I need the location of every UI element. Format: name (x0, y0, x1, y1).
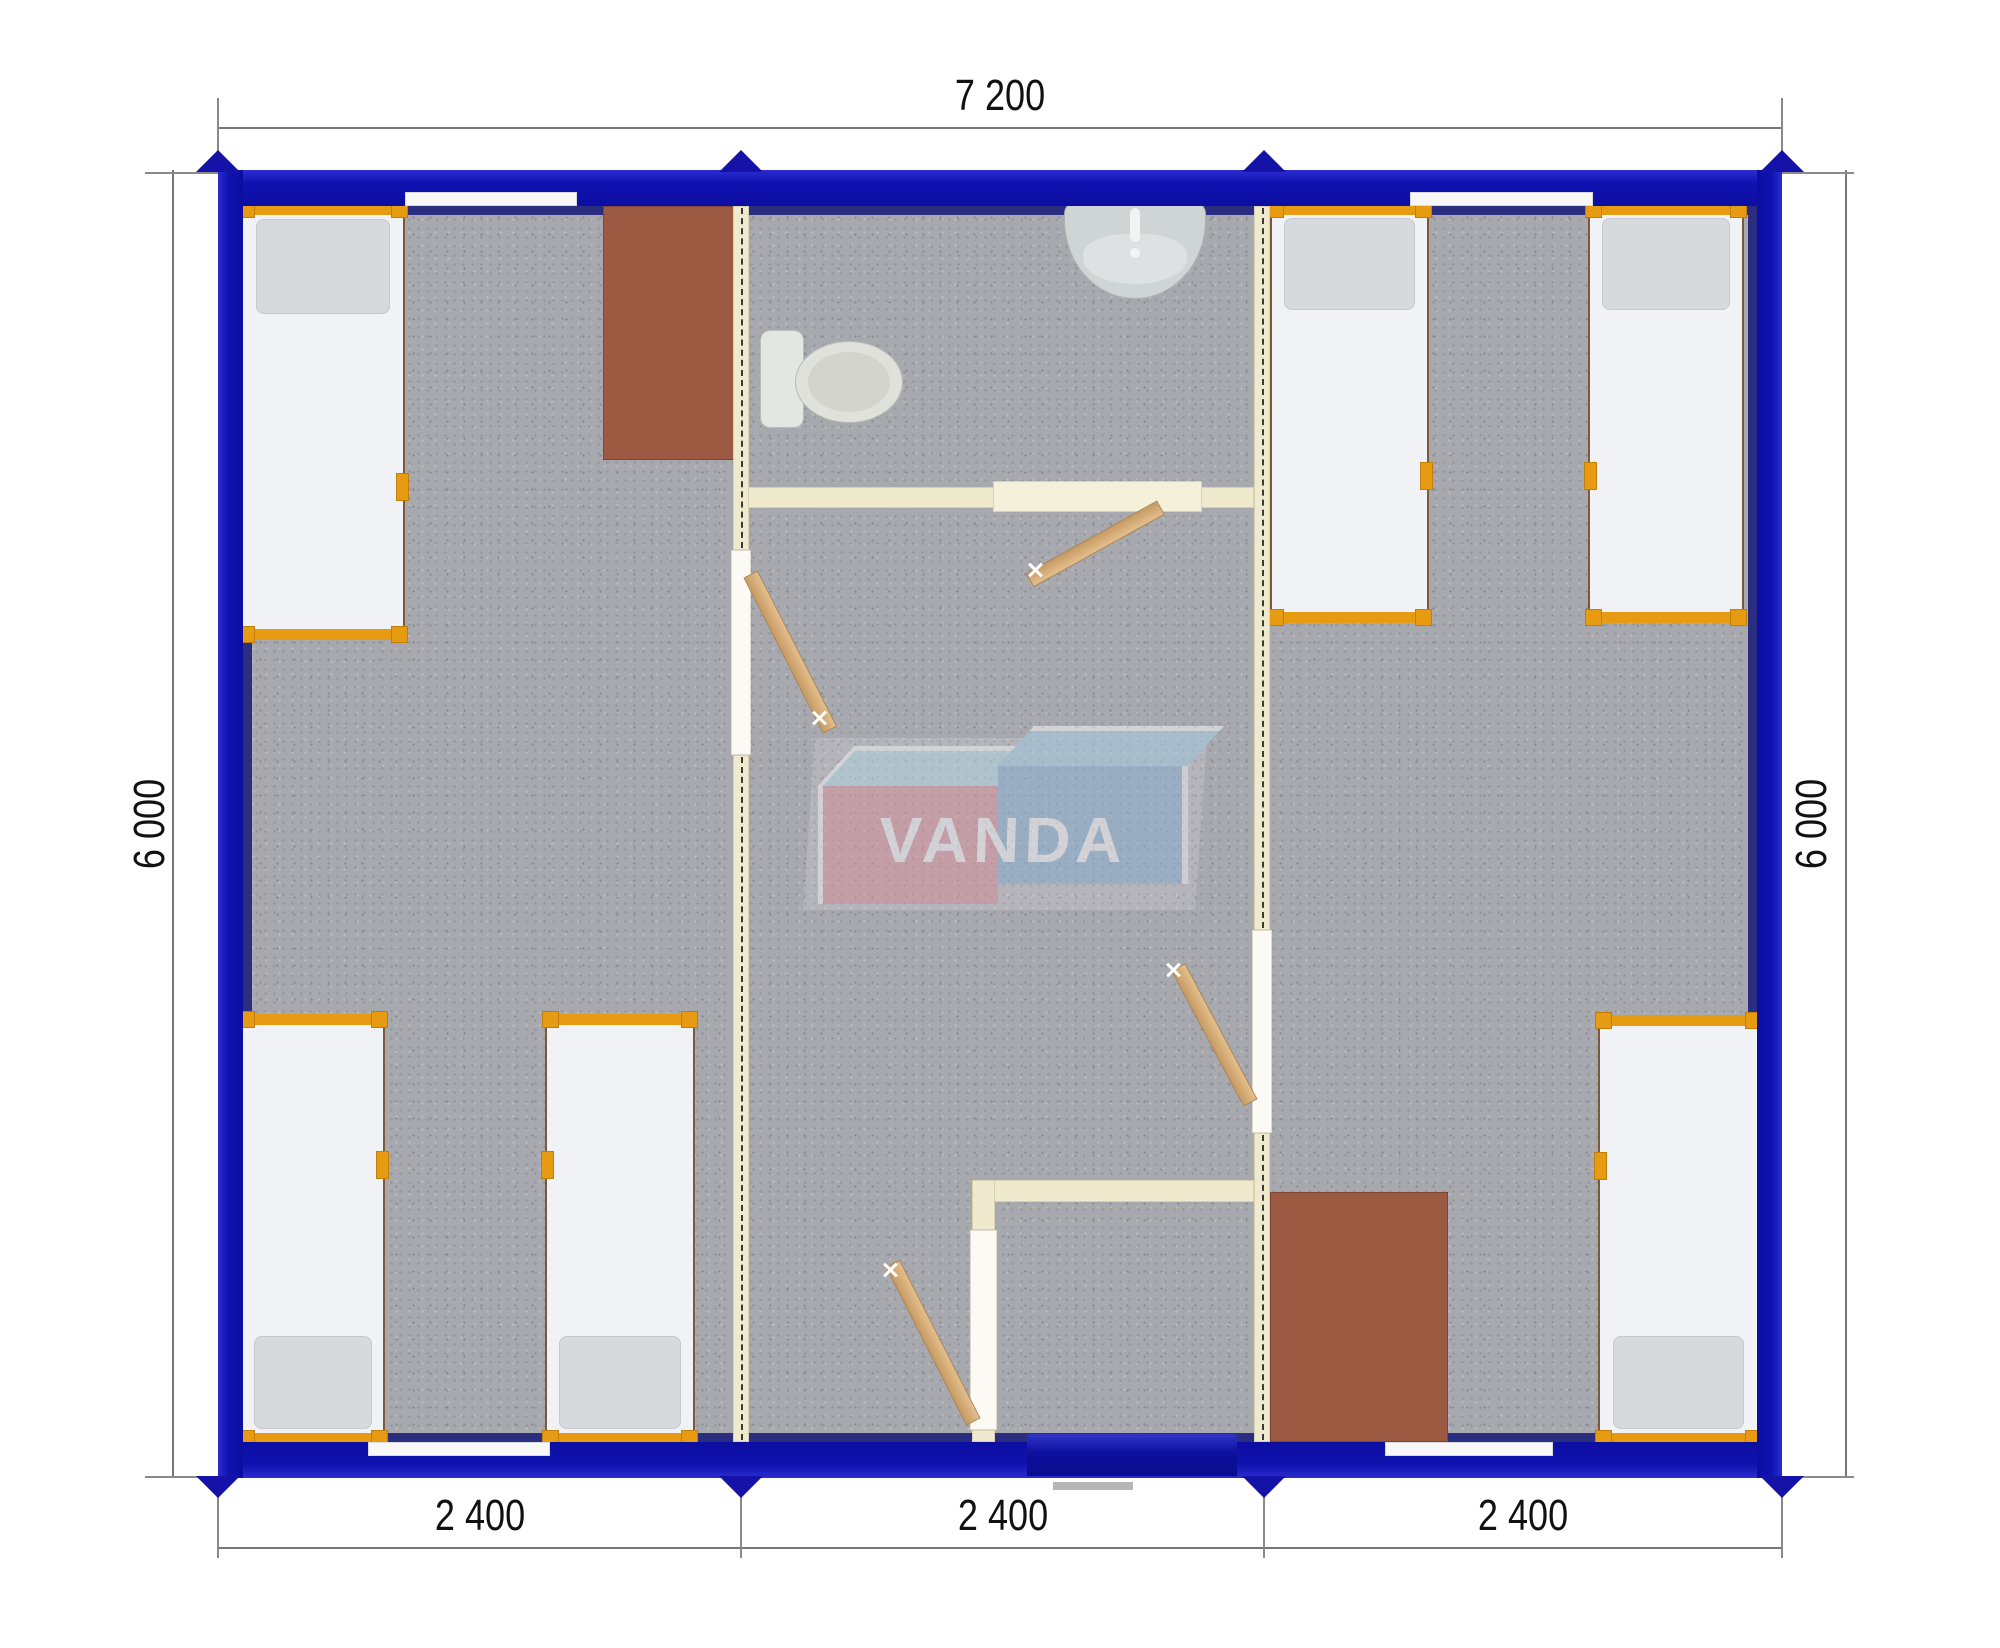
joint-marker-icon (719, 1476, 763, 1498)
bed-post (1268, 610, 1283, 625)
window (405, 192, 577, 206)
dim-label-left-height: 6 000 (126, 752, 174, 896)
bed-rail (545, 1014, 695, 1025)
bed (1600, 1017, 1757, 1442)
partition-wall-left (733, 206, 749, 550)
dim-label-module-2: 2 400 (937, 1492, 1068, 1540)
bed-post (682, 1012, 697, 1027)
bathroom-door-lintel (993, 481, 1202, 512)
bed (547, 1016, 693, 1442)
logo-text: VANDA (824, 804, 1183, 876)
dim-line-top (218, 127, 1782, 129)
entrance-door (1027, 1434, 1237, 1476)
ext-line (1782, 172, 1854, 174)
dim-line-right (1845, 170, 1847, 1478)
faucet (1130, 208, 1140, 242)
vanda-watermark-logo: VANDA (815, 726, 1195, 916)
dim-label-module-1: 2 400 (414, 1492, 545, 1540)
joint-marker-icon (1760, 150, 1804, 172)
bed (1272, 206, 1427, 621)
bed-post (372, 1012, 387, 1027)
bed-post (543, 1012, 558, 1027)
bed-rail (241, 1014, 385, 1025)
bed-rail (1588, 612, 1744, 623)
bed-post (1421, 463, 1432, 489)
door-opening-right-room (1252, 930, 1272, 1133)
joint-marker-icon (196, 1476, 240, 1498)
partition-wall-right (1254, 1133, 1270, 1442)
pillow (559, 1336, 682, 1430)
partition-wall-right (1254, 206, 1270, 930)
bed-post (397, 474, 408, 500)
bed-post (1586, 610, 1601, 625)
door-swing-marker (881, 1261, 899, 1279)
dim-line-bottom (218, 1547, 1782, 1549)
window (1410, 192, 1593, 206)
dim-label-module-3: 2 400 (1457, 1492, 1588, 1540)
bed-post (542, 1152, 553, 1178)
outer-wall-right (1757, 170, 1782, 1478)
bed-post (1416, 610, 1431, 625)
bed (1590, 206, 1742, 621)
partition-wall-left (733, 755, 749, 1442)
bed-post (392, 627, 407, 642)
bed-post (1596, 1013, 1611, 1028)
joint-marker-icon (196, 150, 240, 172)
door-swing-marker (1026, 561, 1044, 579)
door-swing-marker (1164, 961, 1182, 979)
joint-marker-icon (1242, 150, 1286, 172)
building-plan: VANDA (218, 170, 1782, 1478)
bed (243, 206, 403, 638)
joint-marker-icon (1242, 1476, 1286, 1498)
door-swing-marker (810, 709, 828, 727)
joint-marker-icon (1760, 1476, 1804, 1498)
pillow (1613, 1336, 1745, 1430)
door-opening-vestibule (970, 1230, 997, 1430)
outer-wall-left (218, 170, 243, 1478)
pillow (1602, 218, 1730, 309)
desk (603, 206, 734, 460)
logo-blue-top-face (998, 726, 1224, 766)
pillow (256, 219, 390, 314)
dim-label-total-width: 7 200 (934, 72, 1065, 120)
window (1385, 1442, 1553, 1456)
vestibule-wall-vertical (972, 1180, 995, 1230)
bed (243, 1016, 383, 1442)
bed-rail (1270, 612, 1429, 623)
bed-post (1585, 463, 1596, 489)
desk (1270, 1192, 1448, 1442)
dim-label-right-height: 6 000 (1788, 752, 1836, 896)
joint-marker-icon (719, 150, 763, 172)
vestibule-wall-horizontal (972, 1180, 1254, 1202)
bed-post (1595, 1153, 1606, 1179)
ext-line (145, 172, 220, 174)
bed-rail (1598, 1015, 1759, 1026)
bed-post (1731, 610, 1746, 625)
window (368, 1442, 550, 1456)
toilet-bowl (796, 342, 902, 422)
pillow (254, 1336, 372, 1430)
bed-rail (241, 629, 405, 640)
pillow (1284, 218, 1414, 309)
bed-post (377, 1152, 388, 1178)
floor-plan-sheet: 7 200 6 000 6 000 2 400 2 400 2 400 VAND… (0, 0, 2000, 1648)
vestibule-wall-vertical (972, 1430, 995, 1442)
entrance-threshold (1053, 1482, 1133, 1490)
